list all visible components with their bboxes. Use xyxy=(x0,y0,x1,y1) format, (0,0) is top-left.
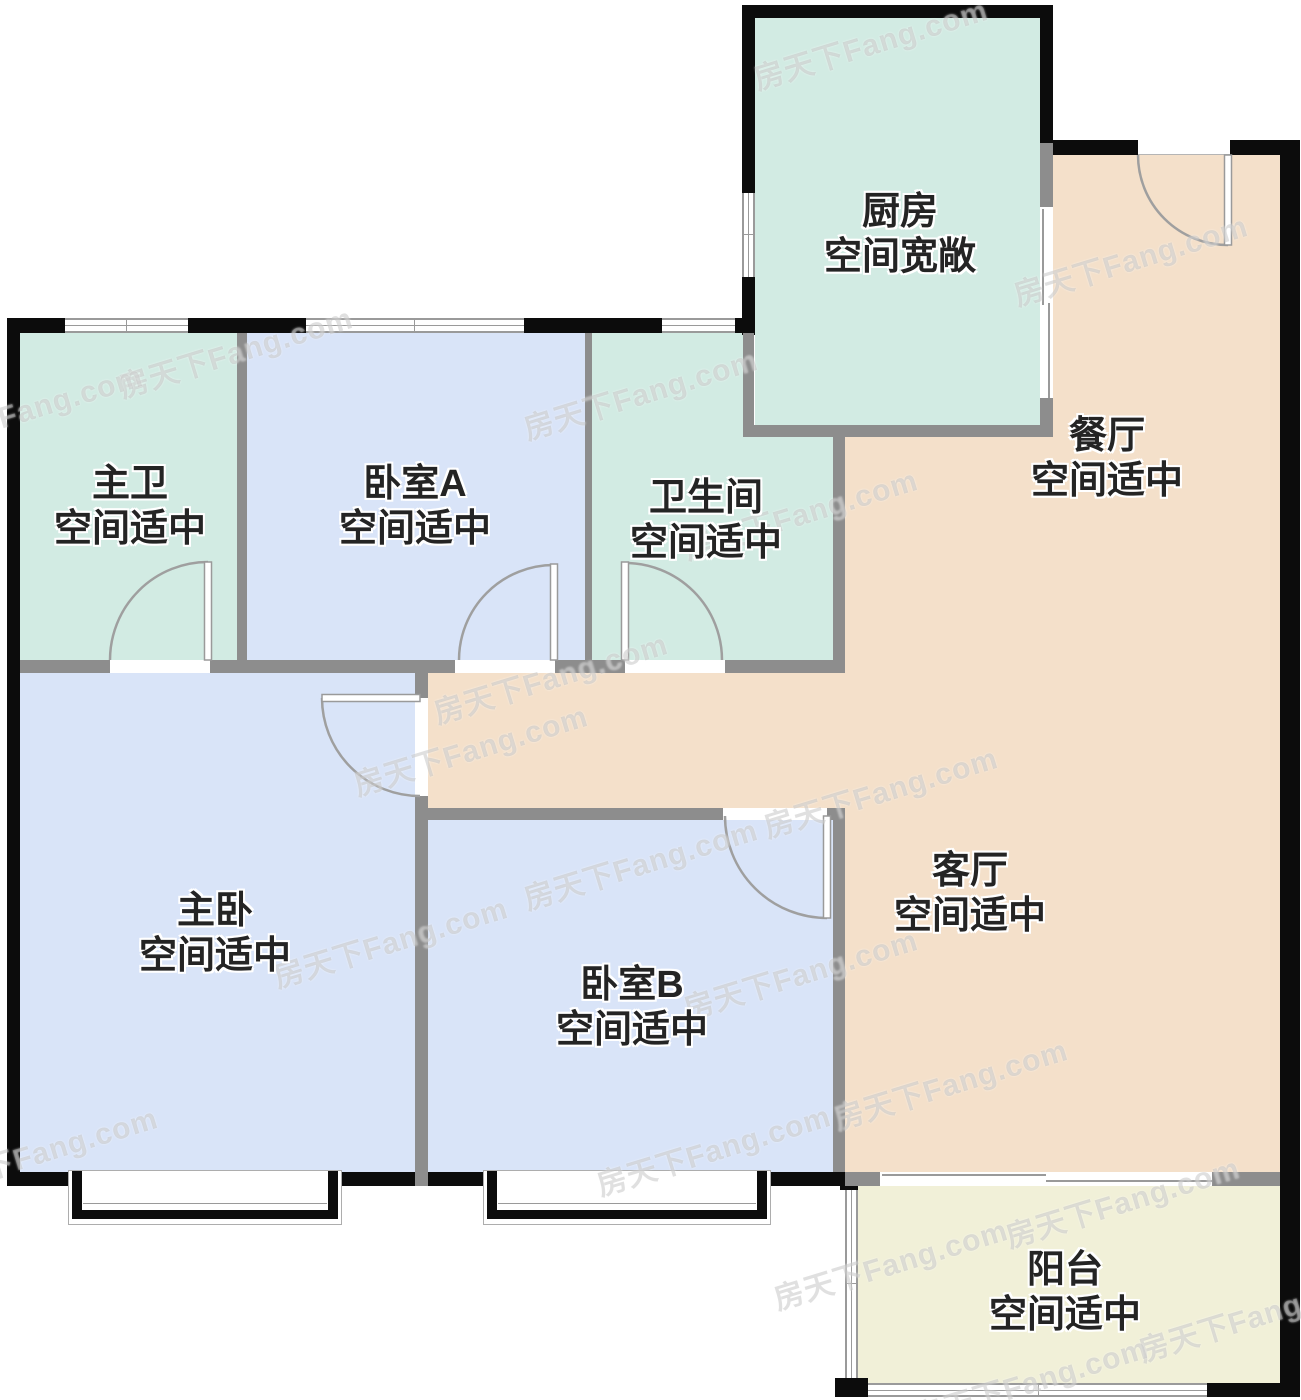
room-name: 卫生间 xyxy=(630,476,782,521)
room-label-kitchen: 厨房 空间宽敞 xyxy=(824,190,976,280)
partition-segment xyxy=(725,660,845,673)
room-name: 厨房 xyxy=(824,190,976,235)
window xyxy=(662,318,735,333)
room-name: 卧室B xyxy=(556,963,708,1008)
room-desc: 空间适中 xyxy=(894,894,1046,939)
room-label-dining: 餐厅 空间适中 xyxy=(1031,414,1183,504)
room-desc: 空间适中 xyxy=(339,507,491,552)
window-glass-line xyxy=(498,1203,756,1204)
window-divider xyxy=(744,234,753,235)
room-name: 卧室A xyxy=(339,462,491,507)
room-name: 客厅 xyxy=(894,849,1046,894)
window-divider xyxy=(414,320,415,331)
wall-segment xyxy=(742,5,755,193)
partition-segment xyxy=(743,425,1053,437)
room-desc: 空间适中 xyxy=(1031,459,1183,504)
room-desc: 空间宽敞 xyxy=(824,235,976,280)
wall-segment xyxy=(1207,1383,1300,1397)
partition-segment xyxy=(20,660,110,673)
room-name: 主卧 xyxy=(139,889,291,934)
room-name: 主卫 xyxy=(54,462,206,507)
partition-segment xyxy=(415,667,428,698)
partition-segment xyxy=(833,437,845,667)
wall-segment xyxy=(7,318,20,1186)
wall-segment xyxy=(1040,140,1138,155)
room-name: 餐厅 xyxy=(1031,414,1183,459)
room-label-bathroom: 卫生间 空间适中 xyxy=(630,476,782,566)
room-label-master-bath: 主卫 空间适中 xyxy=(54,462,206,552)
window-glass-line xyxy=(748,193,749,277)
sliding-panel-line xyxy=(1048,303,1050,398)
room-label-master-bedroom: 主卧 空间适中 xyxy=(139,889,291,979)
partition-segment xyxy=(845,1172,880,1186)
bay-window-frame xyxy=(487,1210,767,1219)
floor-plan: 房天下Fang.com 房天下Fang.com 房天下Fang.com 房天下F… xyxy=(0,0,1301,1400)
room-dining-area[interactable] xyxy=(1053,155,1282,437)
entry-door-opening xyxy=(1138,140,1230,155)
window xyxy=(65,318,188,333)
partition-segment xyxy=(415,1172,428,1186)
wall-segment xyxy=(1040,5,1053,143)
wall-segment xyxy=(524,318,662,333)
sliding-panel-line xyxy=(882,1174,1046,1176)
partition-segment xyxy=(415,796,428,1172)
wall-segment xyxy=(742,277,755,335)
room-label-bedroom-b: 卧室B 空间适中 xyxy=(556,963,708,1053)
bay-window-frame xyxy=(328,1171,338,1213)
room-desc: 空间适中 xyxy=(54,507,206,552)
wall-segment xyxy=(1280,140,1300,1397)
wall-segment xyxy=(835,1378,868,1397)
bay-window-master-bedroom xyxy=(68,1170,342,1225)
bay-window-frame xyxy=(757,1171,767,1213)
room-label-living: 客厅 空间适中 xyxy=(894,849,1046,939)
partition-segment xyxy=(237,333,247,667)
kitchen-window xyxy=(742,193,755,277)
bay-window-frame xyxy=(72,1210,338,1219)
room-desc: 空间适中 xyxy=(139,934,291,979)
wall-segment xyxy=(337,1172,487,1186)
room-desc: 空间适中 xyxy=(556,1008,708,1053)
bay-window-frame xyxy=(72,1171,82,1213)
partition-segment xyxy=(1040,143,1053,207)
partition-segment xyxy=(418,808,723,820)
bay-window-frame xyxy=(487,1171,497,1213)
window-glass-line xyxy=(83,1203,327,1204)
room-name: 阳台 xyxy=(989,1248,1141,1293)
room-desc: 空间适中 xyxy=(989,1293,1141,1338)
window-divider xyxy=(126,320,127,331)
window-glass-line xyxy=(662,325,735,326)
room-label-balcony: 阳台 空间适中 xyxy=(989,1248,1141,1338)
room-desc: 空间适中 xyxy=(630,521,782,566)
door-opening xyxy=(110,660,210,673)
room-label-bedroom-a: 卧室A 空间适中 xyxy=(339,462,491,552)
